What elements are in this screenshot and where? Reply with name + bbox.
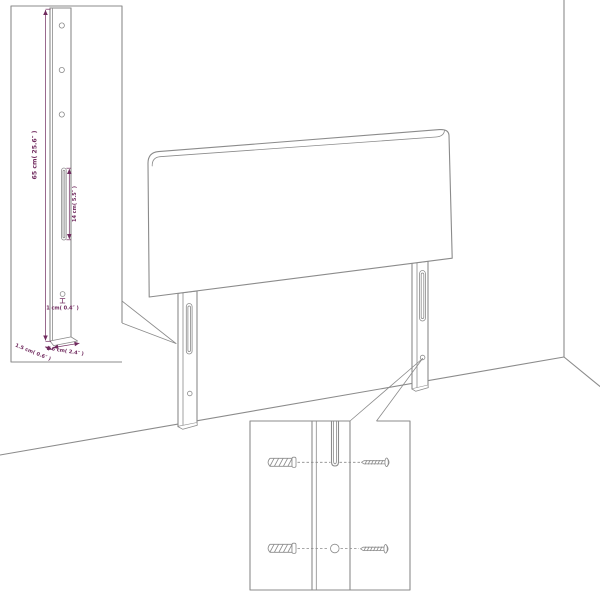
leader-line (122, 301, 176, 344)
leader-line (350, 359, 423, 422)
right-leg-keyhole-slot (420, 271, 426, 322)
leg-hole-top (59, 23, 64, 28)
wall-plug-icon (268, 543, 296, 553)
headboard-left-leg (178, 291, 197, 429)
plug-collar (292, 543, 296, 553)
inset-leg-side-view: 65 cm( 25.6″ ) 14 cm( 5.5″ ) 1 cm( 0.4″ … (11, 6, 122, 362)
leg-bottom-hole (60, 292, 65, 297)
wall-plug-icon (268, 457, 296, 467)
left-leg-keyhole-slot (186, 304, 192, 355)
diagram-canvas: 65 cm( 25.6″ ) 14 cm( 5.5″ ) 1 cm( 0.4″ … (0, 0, 600, 600)
leg-hole-lower (59, 112, 64, 117)
left-leg-screw-hole (188, 391, 193, 396)
inset-box-outline (250, 421, 410, 590)
inset-mounting-detail (250, 421, 410, 590)
plug-collar (292, 457, 296, 467)
callout-lines-left-inset (122, 301, 176, 344)
leader-line (122, 323, 176, 344)
slot-length-dimension-label: 14 cm( 5.5″ ) (72, 186, 78, 222)
hole-offset-dimension-label: 1 cm( 0.4″ ) (46, 306, 79, 312)
assembly-diagram: 65 cm( 25.6″ ) 14 cm( 5.5″ ) 1 cm( 0.4″ … (0, 0, 600, 600)
height-dimension-label: 65 cm( 25.6″ ) (32, 130, 39, 179)
headboard-right-leg (412, 261, 428, 391)
mounting-hole (331, 544, 340, 553)
floor-wall-edge-right (564, 357, 600, 387)
leg-slot (62, 168, 67, 240)
callout-lines-right-inset (350, 359, 423, 422)
leg-hole-middle (59, 67, 64, 72)
